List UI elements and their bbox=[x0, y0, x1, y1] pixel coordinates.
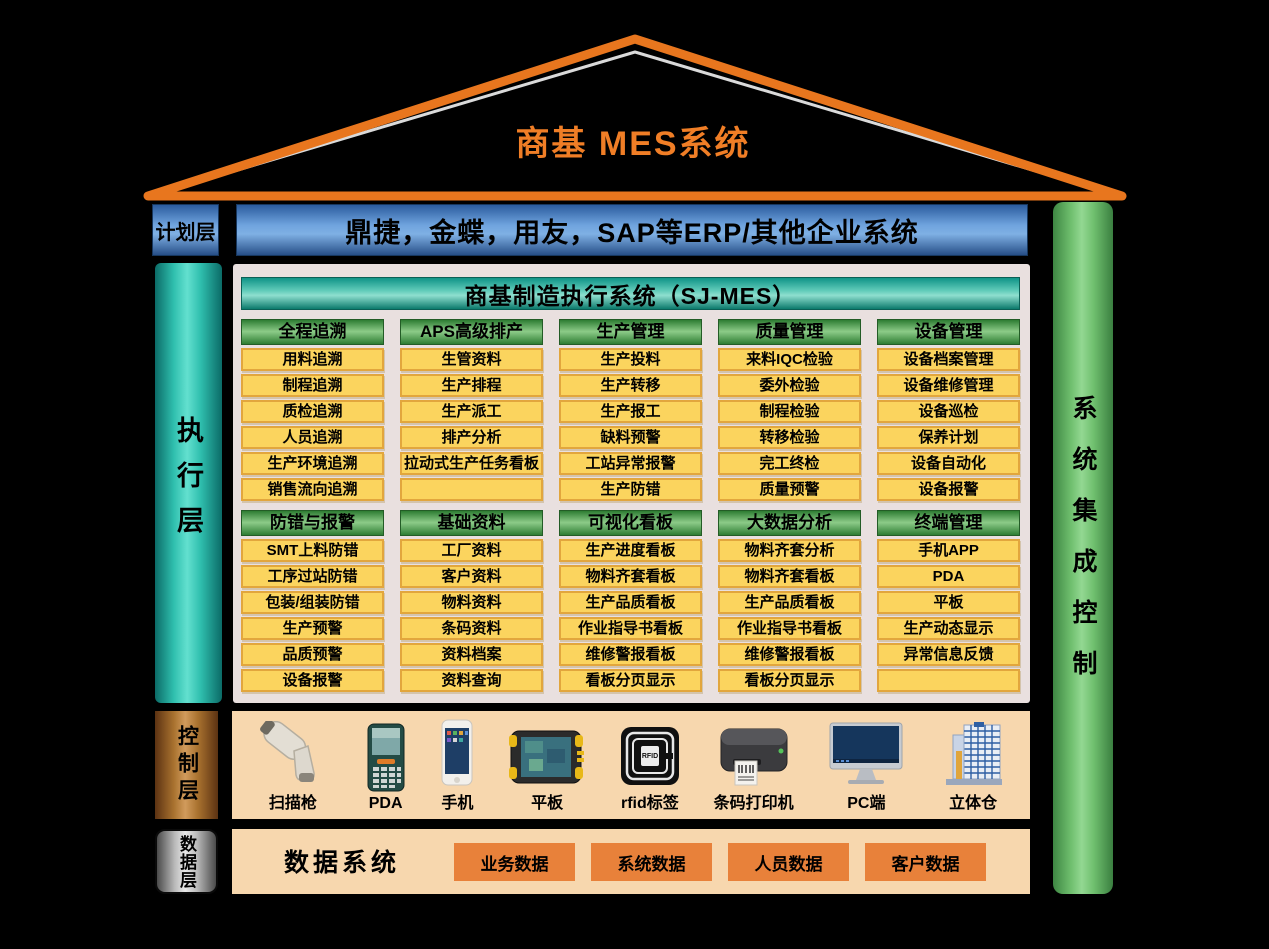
device-label: 立体仓 bbox=[949, 789, 997, 813]
module-item: SMT上料防错 bbox=[241, 539, 384, 562]
tablet-icon bbox=[507, 727, 587, 787]
execution-layer-pillar: 执行层 bbox=[155, 263, 222, 703]
data-layer-label: 数据层 bbox=[155, 829, 218, 894]
module-item: 设备报警 bbox=[241, 669, 384, 692]
module-row-2: 防错与报警SMT上料防错工序过站防错包装/组装防错生产预警品质预警设备报警基础资… bbox=[241, 510, 1020, 695]
control-layer-panel: 扫描枪 PDA bbox=[232, 711, 1030, 819]
module-item: 生产品质看板 bbox=[718, 591, 861, 614]
data-box: 业务数据 bbox=[454, 843, 575, 881]
module-item: 设备巡检 bbox=[877, 400, 1020, 423]
module-item: 维修警报看板 bbox=[559, 643, 702, 666]
module-item: 生产投料 bbox=[559, 348, 702, 371]
module-item: 来料IQC检验 bbox=[718, 348, 861, 371]
module-header: 基础资料 bbox=[400, 510, 543, 536]
module-item: 物料齐套看板 bbox=[559, 565, 702, 588]
module-item: 生产动态显示 bbox=[877, 617, 1020, 640]
device-pc: PC端 bbox=[826, 715, 906, 815]
device-label: 扫描枪 bbox=[269, 789, 317, 813]
module-item: 用料追溯 bbox=[241, 348, 384, 371]
data-layer-panel: 数据系统 业务数据 系统数据 人员数据 客户数据 bbox=[232, 829, 1030, 894]
module-group: 基础资料工厂资料客户资料物料资料条码资料资料档案资料查询 bbox=[400, 510, 543, 695]
diagram-title: 商基 MES系统 bbox=[333, 116, 933, 165]
module-header: 防错与报警 bbox=[241, 510, 384, 536]
module-item: 人员追溯 bbox=[241, 426, 384, 449]
data-system-title: 数据系统 bbox=[284, 843, 400, 879]
device-warehouse: 立体仓 bbox=[938, 715, 1008, 815]
system-integration-pillar: 系统集成控制 bbox=[1053, 202, 1113, 894]
device-barcode-printer: 条码打印机 bbox=[713, 715, 795, 815]
module-group: 全程追溯用料追溯制程追溯质检追溯人员追溯生产环境追溯销售流向追溯 bbox=[241, 319, 384, 504]
module-item: 异常信息反馈 bbox=[877, 643, 1020, 666]
warehouse-icon bbox=[938, 721, 1008, 787]
module-header: APS高级排产 bbox=[400, 319, 543, 345]
module-item: 资料档案 bbox=[400, 643, 543, 666]
module-item: 生产报工 bbox=[559, 400, 702, 423]
scanner-icon bbox=[254, 721, 332, 787]
module-item: 生管资料 bbox=[400, 348, 543, 371]
module-item: 生产进度看板 bbox=[559, 539, 702, 562]
module-item: 生产派工 bbox=[400, 400, 543, 423]
module-item: 维修警报看板 bbox=[718, 643, 861, 666]
module-item: 制程检验 bbox=[718, 400, 861, 423]
phone-icon bbox=[439, 719, 475, 787]
module-group: 质量管理来料IQC检验委外检验制程检验转移检验完工终检质量预警 bbox=[718, 319, 861, 504]
svg-text:RFID: RFID bbox=[642, 753, 658, 760]
control-layer-label: 控制层 bbox=[155, 711, 218, 819]
module-item: 生产转移 bbox=[559, 374, 702, 397]
module-item: 包装/组装防错 bbox=[241, 591, 384, 614]
device-label: 平板 bbox=[531, 789, 563, 813]
data-box: 客户数据 bbox=[865, 843, 986, 881]
module-item: 资料查询 bbox=[400, 669, 543, 692]
device-label: 手机 bbox=[441, 789, 473, 813]
device-rfid-tag: RFID rfid标签 bbox=[619, 715, 681, 815]
module-header: 大数据分析 bbox=[718, 510, 861, 536]
module-item: 设备自动化 bbox=[877, 452, 1020, 475]
module-item: 生产预警 bbox=[241, 617, 384, 640]
module-item: 拉动式生产任务看板 bbox=[400, 452, 543, 475]
device-pda: PDA bbox=[364, 715, 408, 815]
module-item: 转移检验 bbox=[718, 426, 861, 449]
module-row-1: 全程追溯用料追溯制程追溯质检追溯人员追溯生产环境追溯销售流向追溯APS高级排产生… bbox=[241, 319, 1020, 504]
module-item: 作业指导书看板 bbox=[559, 617, 702, 640]
module-item: 设备报警 bbox=[877, 478, 1020, 501]
module-item: 制程追溯 bbox=[241, 374, 384, 397]
device-label: PC端 bbox=[847, 789, 885, 813]
module-item: 工厂资料 bbox=[400, 539, 543, 562]
module-group: 生产管理生产投料生产转移生产报工缺料预警工站异常报警生产防错 bbox=[559, 319, 702, 504]
pc-icon bbox=[826, 721, 906, 787]
device-label: PDA bbox=[369, 795, 403, 813]
module-header: 设备管理 bbox=[877, 319, 1020, 345]
module-item: 生产防错 bbox=[559, 478, 702, 501]
module-item: PDA bbox=[877, 565, 1020, 588]
module-item: 平板 bbox=[877, 591, 1020, 614]
module-item: 缺料预警 bbox=[559, 426, 702, 449]
module-item: 看板分页显示 bbox=[718, 669, 861, 692]
module-group: 终端管理手机APPPDA平板生产动态显示异常信息反馈 bbox=[877, 510, 1020, 695]
module-item: 看板分页显示 bbox=[559, 669, 702, 692]
pda-icon bbox=[364, 723, 408, 793]
module-header: 生产管理 bbox=[559, 319, 702, 345]
module-item: 质检追溯 bbox=[241, 400, 384, 423]
mes-panel-title: 商基制造执行系统（SJ-MES） bbox=[241, 277, 1020, 310]
mes-panel: 商基制造执行系统（SJ-MES） 全程追溯用料追溯制程追溯质检追溯人员追溯生产环… bbox=[233, 264, 1030, 703]
module-group: 防错与报警SMT上料防错工序过站防错包装/组装防错生产预警品质预警设备报警 bbox=[241, 510, 384, 695]
plan-layer-label: 计划层 bbox=[152, 204, 219, 256]
module-item: 质量预警 bbox=[718, 478, 861, 501]
rfid-icon: RFID bbox=[619, 725, 681, 787]
device-label: 条码打印机 bbox=[714, 789, 794, 813]
device-phone: 手机 bbox=[439, 715, 475, 815]
module-item: 物料齐套分析 bbox=[718, 539, 861, 562]
module-group: 可视化看板生产进度看板物料齐套看板生产品质看板作业指导书看板维修警报看板看板分页… bbox=[559, 510, 702, 695]
mes-architecture-diagram: 商基 MES系统 计划层 鼎捷，金蝶，用友，SAP等ERP/其他企业系统 执行层… bbox=[0, 0, 1269, 949]
module-item: 生产排程 bbox=[400, 374, 543, 397]
module-item-empty bbox=[877, 669, 1020, 692]
data-box: 系统数据 bbox=[591, 843, 712, 881]
module-group: APS高级排产生管资料生产排程生产派工排产分析拉动式生产任务看板 bbox=[400, 319, 543, 504]
module-group: 设备管理设备档案管理设备维修管理设备巡检保养计划设备自动化设备报警 bbox=[877, 319, 1020, 504]
module-header: 可视化看板 bbox=[559, 510, 702, 536]
module-item: 物料资料 bbox=[400, 591, 543, 614]
module-item: 完工终检 bbox=[718, 452, 861, 475]
module-item: 排产分析 bbox=[400, 426, 543, 449]
module-group: 大数据分析物料齐套分析物料齐套看板生产品质看板作业指导书看板维修警报看板看板分页… bbox=[718, 510, 861, 695]
module-item: 委外检验 bbox=[718, 374, 861, 397]
module-item: 生产品质看板 bbox=[559, 591, 702, 614]
module-header: 质量管理 bbox=[718, 319, 861, 345]
module-item: 销售流向追溯 bbox=[241, 478, 384, 501]
module-item: 手机APP bbox=[877, 539, 1020, 562]
module-header: 终端管理 bbox=[877, 510, 1020, 536]
module-item: 生产环境追溯 bbox=[241, 452, 384, 475]
device-scanner: 扫描枪 bbox=[254, 715, 332, 815]
data-boxes: 业务数据 系统数据 人员数据 客户数据 bbox=[454, 843, 986, 881]
erp-systems-bar: 鼎捷，金蝶，用友，SAP等ERP/其他企业系统 bbox=[236, 204, 1028, 256]
module-item: 保养计划 bbox=[877, 426, 1020, 449]
barcode-printer-icon bbox=[713, 721, 795, 787]
module-item: 条码资料 bbox=[400, 617, 543, 640]
device-label: rfid标签 bbox=[621, 789, 679, 813]
module-item: 设备档案管理 bbox=[877, 348, 1020, 371]
module-item: 工站异常报警 bbox=[559, 452, 702, 475]
module-header: 全程追溯 bbox=[241, 319, 384, 345]
module-item: 作业指导书看板 bbox=[718, 617, 861, 640]
device-tablet: 平板 bbox=[507, 715, 587, 815]
module-item: 物料齐套看板 bbox=[718, 565, 861, 588]
module-item-empty bbox=[400, 478, 543, 501]
module-item: 品质预警 bbox=[241, 643, 384, 666]
module-item: 客户资料 bbox=[400, 565, 543, 588]
module-item: 设备维修管理 bbox=[877, 374, 1020, 397]
data-box: 人员数据 bbox=[728, 843, 849, 881]
module-item: 工序过站防错 bbox=[241, 565, 384, 588]
